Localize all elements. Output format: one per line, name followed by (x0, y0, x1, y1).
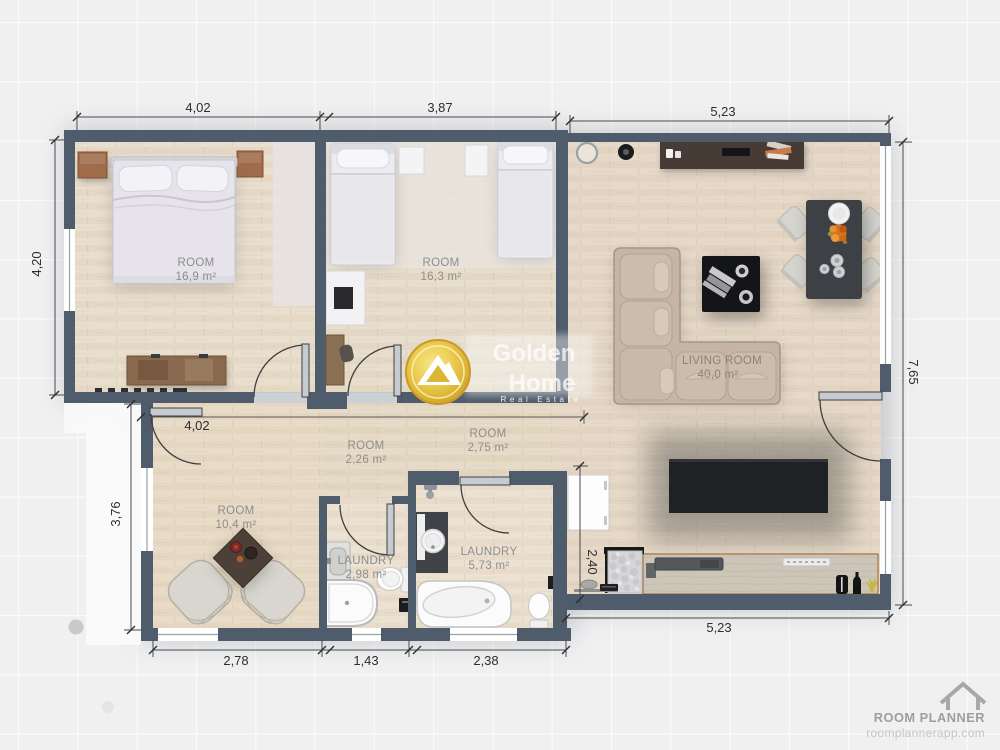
svg-text:16,9 m²: 16,9 m² (175, 271, 216, 283)
svg-text:40,0 m²: 40,0 m² (697, 369, 738, 381)
svg-text:7,65: 7,65 (906, 359, 921, 384)
svg-text:roomplannerapp.com: roomplannerapp.com (866, 726, 985, 740)
svg-text:ROOM: ROOM (178, 257, 215, 269)
svg-text:5,23: 5,23 (710, 104, 735, 119)
svg-text:4,02: 4,02 (184, 418, 209, 433)
svg-text:3,76: 3,76 (108, 501, 123, 526)
svg-text:Golden: Golden (493, 340, 576, 367)
svg-text:4,20: 4,20 (29, 251, 44, 276)
svg-text:16,3 m²: 16,3 m² (420, 271, 461, 283)
svg-text:ROOM: ROOM (218, 505, 255, 517)
svg-text:5,23: 5,23 (706, 620, 731, 635)
svg-text:1,43: 1,43 (353, 653, 378, 668)
svg-text:ROOM PLANNER: ROOM PLANNER (874, 710, 985, 725)
svg-text:ROOM: ROOM (348, 440, 385, 452)
svg-text:Home: Home (509, 370, 576, 397)
svg-text:2,40: 2,40 (585, 549, 600, 574)
svg-text:LAUNDRY: LAUNDRY (461, 546, 518, 558)
svg-text:ROOM: ROOM (470, 428, 507, 440)
svg-text:LIVING ROOM: LIVING ROOM (682, 355, 762, 367)
svg-text:2,26 m²: 2,26 m² (345, 454, 386, 466)
svg-text:2,38: 2,38 (473, 653, 498, 668)
svg-text:Real Estate: Real Estate (501, 395, 582, 404)
svg-text:3,87: 3,87 (427, 100, 452, 115)
svg-text:5,73 m²: 5,73 m² (468, 560, 509, 572)
svg-text:10,4 m²: 10,4 m² (215, 519, 256, 531)
svg-text:2,75 m²: 2,75 m² (467, 442, 508, 454)
svg-text:ROOM: ROOM (423, 257, 460, 269)
svg-text:2,98 m²: 2,98 m² (345, 569, 386, 581)
svg-text:2,78: 2,78 (223, 653, 248, 668)
svg-text:4,02: 4,02 (185, 100, 210, 115)
svg-text:LAUNDRY: LAUNDRY (338, 555, 395, 567)
